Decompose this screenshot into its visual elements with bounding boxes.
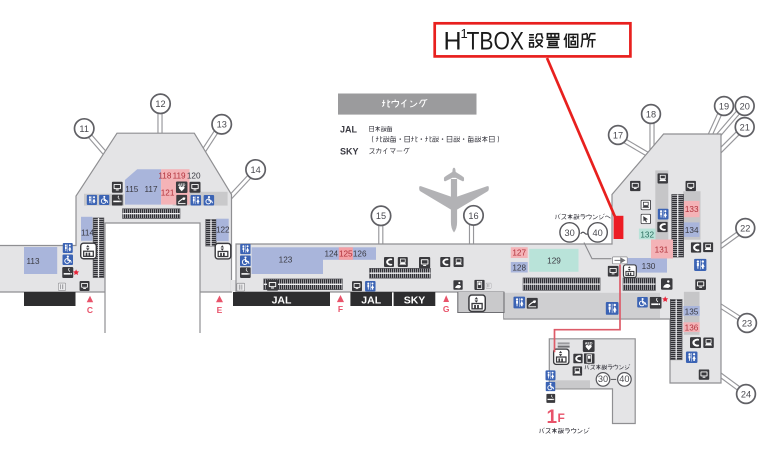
svg-text:40: 40 [592,228,602,238]
svg-text:1: 1 [547,407,558,428]
svg-text:124: 124 [324,250,338,259]
svg-text:E: E [217,305,223,315]
svg-text:120: 120 [187,172,201,181]
svg-text:19: 19 [719,101,729,111]
svg-text:118: 118 [158,172,171,181]
svg-text:12: 12 [155,99,165,109]
svg-text:121: 121 [161,188,175,197]
svg-text:JAL: JAL [361,295,381,307]
svg-text:TBOX: TBOX [467,28,525,56]
svg-text:136: 136 [685,324,699,333]
svg-text:117: 117 [144,185,157,194]
svg-text:20: 20 [740,101,750,111]
svg-text:16: 16 [468,211,478,221]
svg-text:119: 119 [173,172,186,181]
svg-text:128: 128 [512,263,526,272]
svg-text:114: 114 [81,229,94,238]
svg-text:18: 18 [646,109,656,119]
svg-text:JAL: JAL [272,295,292,307]
svg-text:130: 130 [642,262,656,271]
svg-text:123: 123 [279,256,293,265]
svg-text:H: H [444,28,462,56]
svg-text:17: 17 [613,130,623,140]
svg-text:115: 115 [125,185,138,194]
svg-text:134: 134 [685,226,699,235]
svg-text:132: 132 [640,230,654,239]
svg-text:30: 30 [564,228,574,238]
svg-text:13: 13 [217,120,227,130]
svg-text:21: 21 [740,122,750,132]
svg-text:SKY: SKY [404,295,426,307]
svg-text:127: 127 [512,249,526,258]
svg-text:126: 126 [353,250,367,259]
svg-text:F: F [338,304,343,314]
svg-text:122: 122 [216,226,230,235]
svg-text:23: 23 [742,318,752,328]
svg-text:SKY: SKY [340,147,359,157]
svg-text:133: 133 [685,205,699,214]
svg-text:113: 113 [26,257,39,266]
svg-text:24: 24 [741,389,751,399]
svg-text:14: 14 [250,165,260,175]
svg-text:G: G [443,304,450,314]
svg-text:125: 125 [339,250,353,259]
svg-text:131: 131 [655,245,669,254]
svg-text:JAL: JAL [340,124,358,134]
svg-text:129: 129 [547,256,561,265]
svg-text:30: 30 [598,374,608,384]
svg-text:C: C [87,305,93,315]
svg-text:40: 40 [619,374,629,384]
svg-text:15: 15 [376,211,386,221]
svg-text:11: 11 [79,124,89,134]
svg-text:135: 135 [685,307,699,316]
svg-text:22: 22 [740,223,750,233]
svg-text:F: F [558,411,565,425]
